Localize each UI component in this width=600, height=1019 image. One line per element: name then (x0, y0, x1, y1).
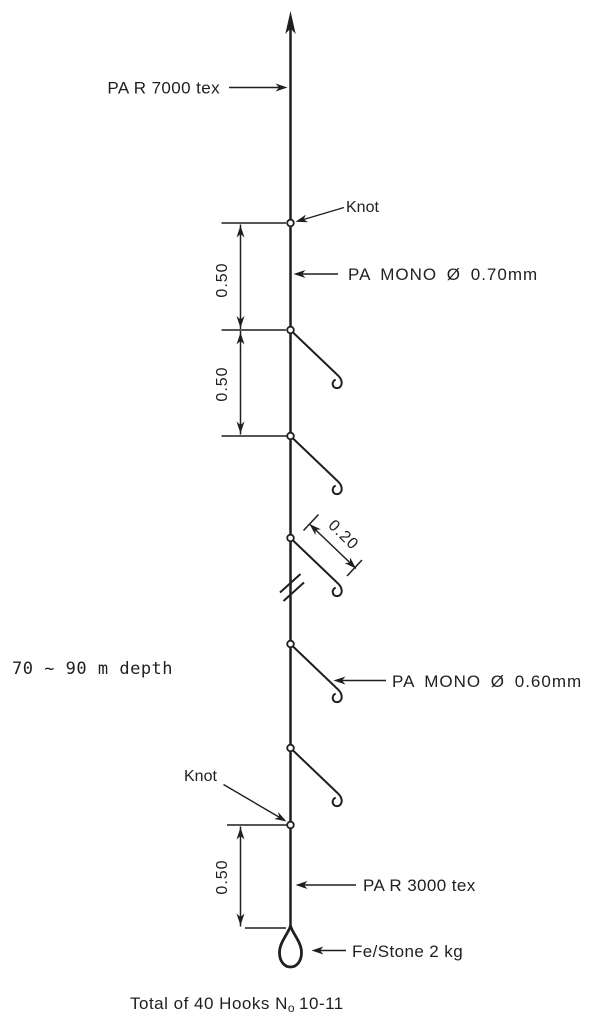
dimension-lower (237, 827, 245, 927)
caption-prefix: Total of 40 Hooks N (130, 994, 288, 1013)
knot-circle-4 (287, 535, 294, 542)
knot-circle-1 (287, 220, 294, 227)
diagram-canvas: 0.50 0.50 0.50 0.20 (0, 0, 600, 1019)
sinker-weight-icon (280, 926, 302, 967)
dim-hook-spacing-label: 0.20 (325, 517, 362, 554)
knot-circle-6 (287, 745, 294, 752)
branch-lower-label: PA MONO Ø 0.60mm (392, 672, 582, 691)
caption-total-hooks: Total of 40 Hooks No10-11 (130, 994, 344, 1015)
bottomline-label-arrow (296, 881, 357, 889)
mainline-label-arrow (229, 84, 288, 92)
hook-2-icon (292, 438, 342, 495)
knot-circle-5 (287, 641, 294, 648)
dim-lower-label: 0.50 (214, 859, 231, 894)
knot-lower-leader (224, 785, 289, 825)
caption-subscript: o (288, 1001, 295, 1015)
branch-upper-label: PA MONO Ø 0.70mm (348, 265, 538, 284)
dim-upper-2-label: 0.50 (214, 366, 231, 401)
depth-note: 70 ~ 90 m depth (12, 659, 173, 679)
knot-upper-label: Knot (346, 199, 379, 216)
sinker-label-arrow (312, 947, 347, 955)
knot-circle-2 (287, 327, 294, 334)
knot-circle-7 (287, 822, 294, 829)
hook-1-icon (292, 332, 342, 389)
branch-lower-label-arrow (334, 677, 387, 685)
sinker-label: Fe/Stone 2 kg (352, 942, 463, 961)
hook-4-icon (292, 646, 342, 703)
knot-circle-3 (287, 433, 294, 440)
knot-upper-leader (294, 208, 344, 226)
bottomline-label: PA R 3000 tex (363, 876, 476, 895)
longline-gear-diagram: 0.50 0.50 0.50 0.20 (0, 0, 600, 1019)
knot-lower-label: Knot (184, 768, 217, 785)
mainline-label: PA R 7000 tex (107, 79, 220, 98)
caption-suffix: 10-11 (299, 994, 344, 1013)
hook-5-icon (292, 750, 342, 807)
line-break-icon (280, 574, 304, 601)
dim-upper-1-label: 0.50 (214, 262, 231, 297)
branch-upper-label-arrow (294, 270, 339, 278)
